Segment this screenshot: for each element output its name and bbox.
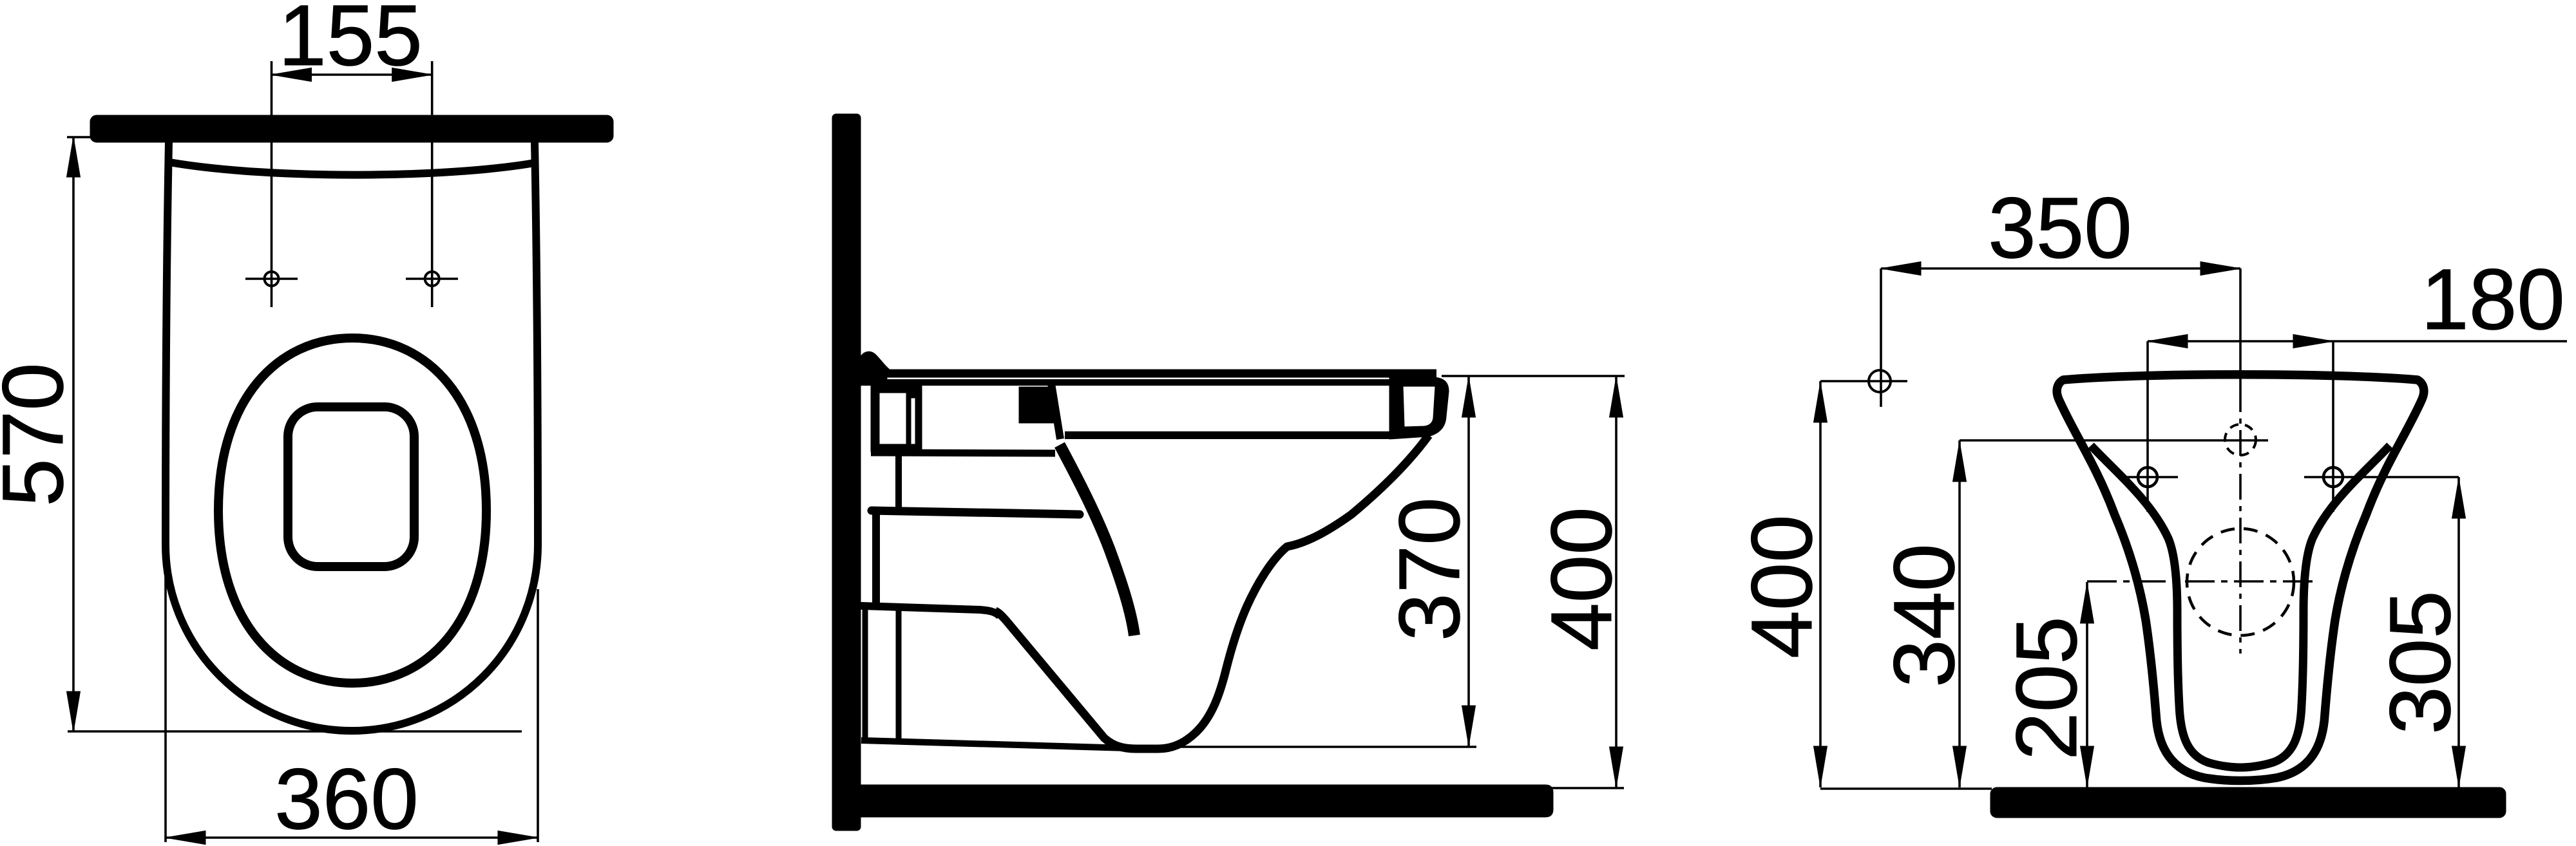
svg-text:205: 205 [1999, 616, 2095, 760]
svg-text:370: 370 [1382, 497, 1478, 641]
svg-text:340: 340 [1876, 543, 1972, 688]
svg-text:360: 360 [274, 751, 419, 846]
svg-text:155: 155 [278, 0, 423, 84]
svg-text:400: 400 [1534, 507, 1630, 651]
svg-text:350: 350 [1988, 180, 2132, 276]
svg-text:305: 305 [2372, 590, 2468, 735]
svg-text:180: 180 [2421, 252, 2565, 348]
svg-text:570: 570 [0, 362, 81, 507]
svg-text:400: 400 [1734, 514, 1830, 659]
